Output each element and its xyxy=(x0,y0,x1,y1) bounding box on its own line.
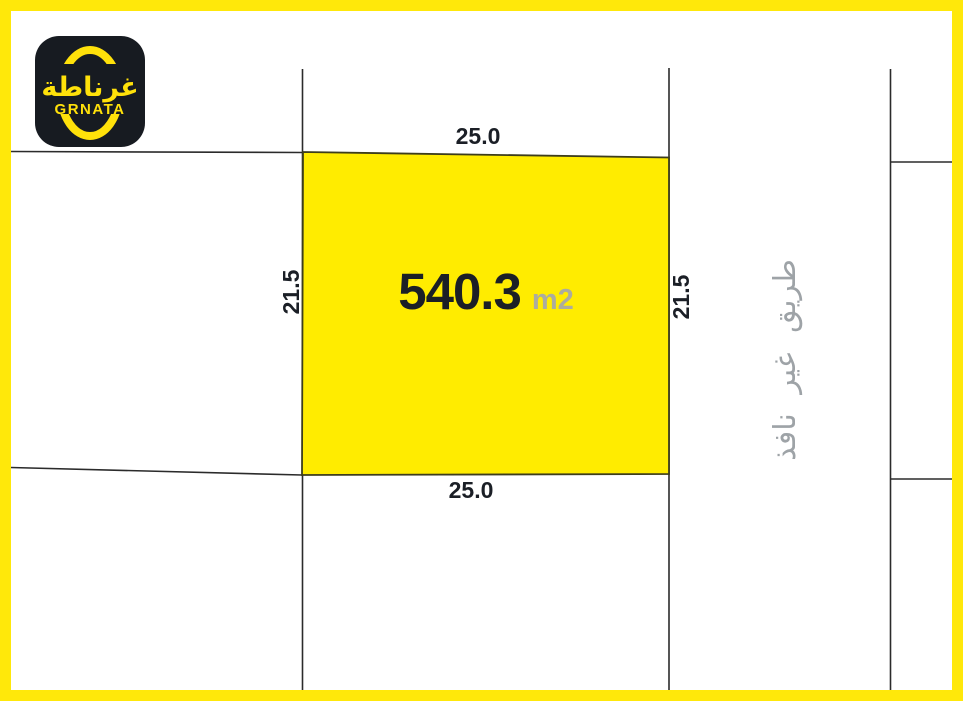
grnata-logo: غرناطة GRNATA xyxy=(35,36,145,147)
dimension-right: 21.5 xyxy=(668,257,694,337)
parcel-area-value: 540.3 xyxy=(398,266,521,317)
dimension-left: 21.5 xyxy=(278,252,304,332)
parcel-area-label: 540.3 m2 xyxy=(303,266,669,317)
boundary-line-bottom-left-horizontal xyxy=(11,468,302,476)
dimension-bottom: 25.0 xyxy=(401,477,541,503)
grnata-logo-graphic: غرناطة GRNATA xyxy=(35,36,145,147)
dimension-top: 25.0 xyxy=(408,123,548,149)
plot-map-canvas: غرناطة GRNATA 25.0 25.0 21.5 21.5 540.3 … xyxy=(0,0,963,701)
boundary-line-top-left-horizontal xyxy=(11,152,303,153)
logo-latin-wordmark: GRNATA xyxy=(55,101,126,118)
parcel-area-unit: m2 xyxy=(532,286,574,315)
logo-arabic-wordmark: غرناطة xyxy=(41,72,138,103)
road-label: طريق غير نافذ xyxy=(763,245,809,475)
